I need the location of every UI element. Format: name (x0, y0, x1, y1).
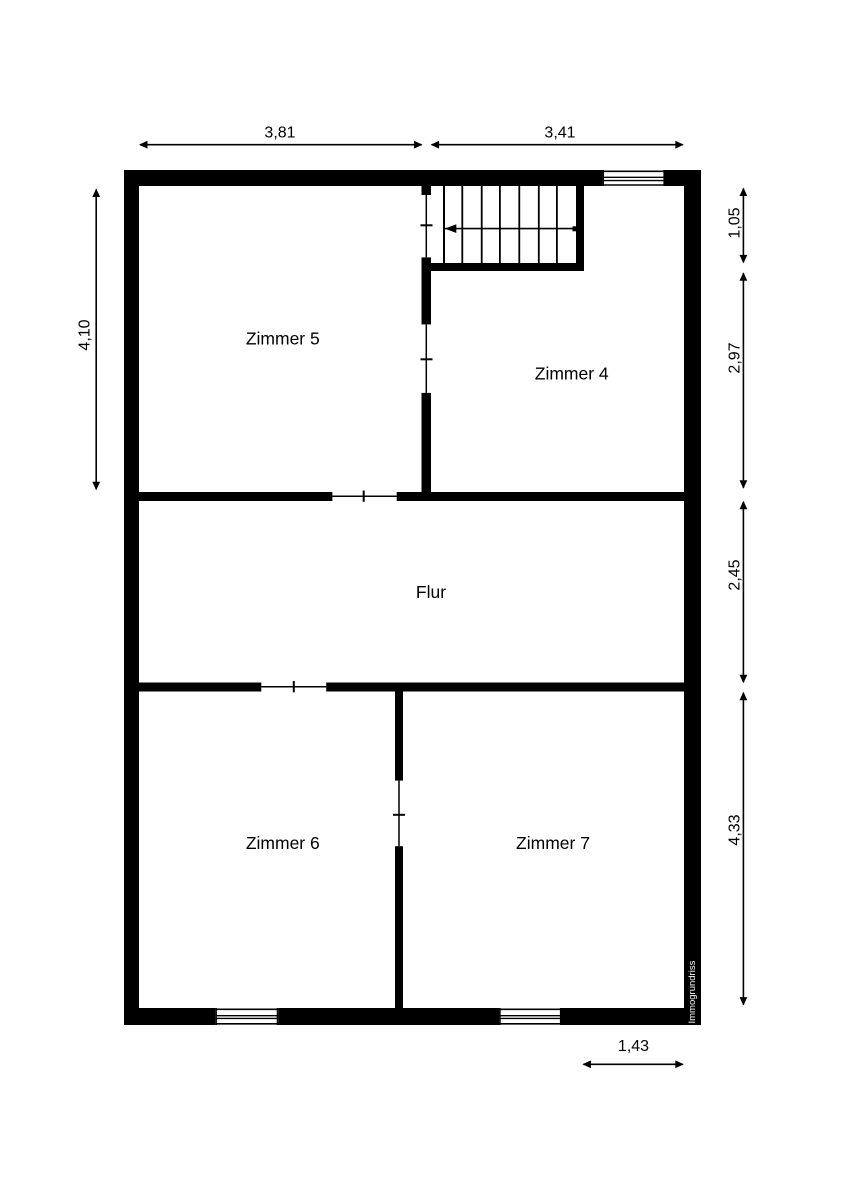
svg-text:1,43: 1,43 (618, 1038, 649, 1055)
svg-text:1,05: 1,05 (727, 207, 744, 238)
svg-text:4,33: 4,33 (727, 814, 744, 845)
svg-text:Zimmer 6: Zimmer 6 (246, 833, 320, 853)
svg-text:3,41: 3,41 (544, 125, 575, 142)
svg-text:Immogrundriss: Immogrundriss (687, 960, 698, 1023)
svg-text:Zimmer 7: Zimmer 7 (516, 833, 590, 853)
svg-text:4,10: 4,10 (76, 319, 93, 350)
svg-text:Zimmer 5: Zimmer 5 (246, 329, 320, 349)
svg-text:3,81: 3,81 (264, 125, 295, 142)
svg-text:Zimmer 4: Zimmer 4 (535, 364, 609, 384)
svg-text:Flur: Flur (416, 582, 446, 602)
svg-text:2,97: 2,97 (727, 342, 744, 373)
svg-text:2,45: 2,45 (727, 559, 744, 590)
